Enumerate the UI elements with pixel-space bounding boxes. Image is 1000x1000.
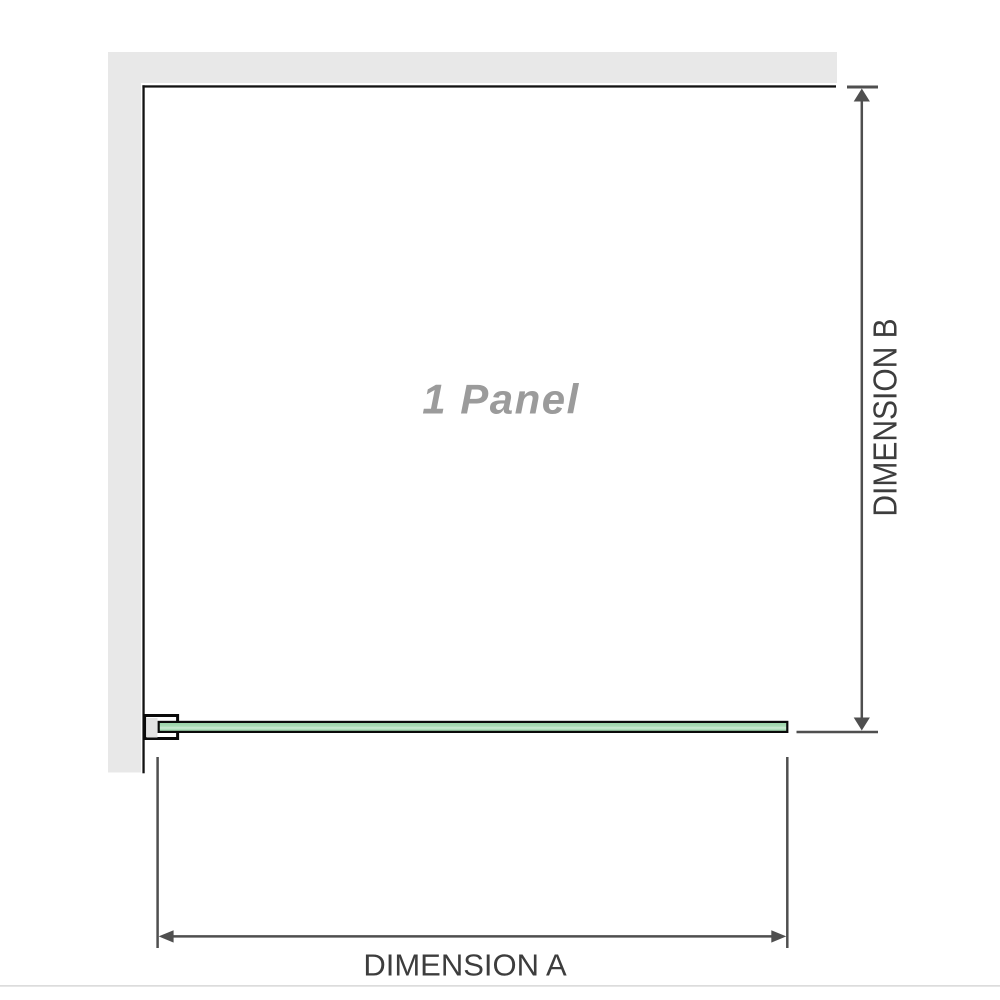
svg-text:DIMENSION A: DIMENSION A <box>363 948 567 983</box>
svg-text:1 Panel: 1 Panel <box>422 376 580 423</box>
svg-text:DIMENSION B: DIMENSION B <box>866 318 904 516</box>
